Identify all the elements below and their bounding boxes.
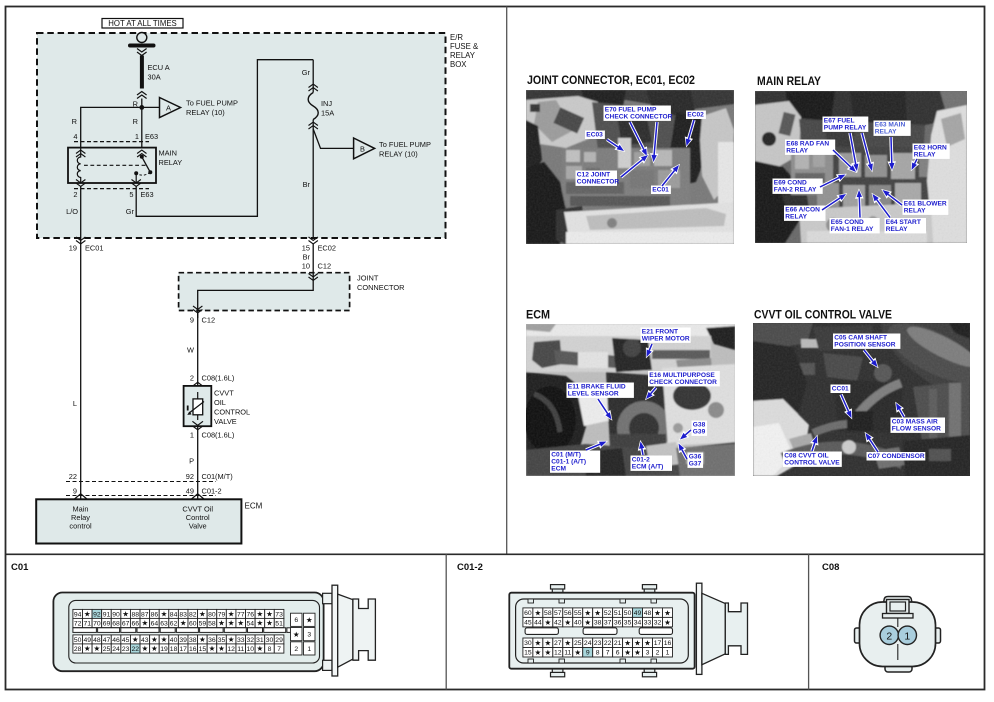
svg-text:★: ★ (141, 644, 148, 653)
svg-text:1: 1 (307, 646, 311, 653)
svg-text:L: L (73, 399, 77, 408)
svg-text:1: 1 (666, 650, 670, 657)
svg-text:2: 2 (190, 374, 194, 383)
svg-text:64: 64 (151, 620, 159, 627)
svg-text:★: ★ (594, 608, 601, 617)
svg-text:A: A (166, 104, 171, 113)
svg-text:73: 73 (275, 611, 283, 618)
svg-text:21: 21 (614, 640, 622, 647)
svg-text:★: ★ (624, 638, 631, 647)
svg-text:79: 79 (218, 611, 226, 618)
svg-text:C08: C08 (822, 562, 839, 573)
svg-text:8: 8 (268, 646, 272, 653)
svg-text:C07 CONDENSOR: C07 CONDENSOR (868, 453, 925, 460)
svg-text:55: 55 (574, 610, 582, 617)
svg-text:RELAY (10): RELAY (10) (379, 150, 418, 159)
svg-text:HOT AT ALL TIMES: HOT AT ALL TIMES (108, 19, 176, 28)
svg-text:JOINT: JOINT (357, 274, 379, 283)
svg-text:19: 19 (69, 244, 77, 253)
svg-text:★: ★ (141, 619, 148, 628)
svg-text:★: ★ (306, 616, 313, 625)
svg-text:51: 51 (614, 610, 622, 617)
svg-text:★: ★ (544, 618, 551, 627)
svg-text:22: 22 (604, 640, 612, 647)
svg-text:45: 45 (524, 620, 532, 627)
svg-text:★: ★ (84, 644, 91, 653)
svg-text:43: 43 (141, 637, 149, 644)
svg-text:33: 33 (237, 637, 245, 644)
svg-text:E63: E63 (145, 132, 158, 141)
svg-text:C08(1.6L): C08(1.6L) (202, 374, 235, 383)
svg-text:★: ★ (574, 648, 581, 657)
svg-text:RELAY: RELAY (785, 213, 807, 220)
svg-text:29: 29 (275, 637, 283, 644)
svg-text:★: ★ (664, 608, 671, 617)
svg-text:★: ★ (228, 610, 235, 619)
svg-text:62: 62 (170, 620, 178, 627)
svg-text:EC02: EC02 (687, 112, 704, 119)
svg-text:46: 46 (112, 637, 120, 644)
svg-text:38: 38 (594, 620, 602, 627)
svg-text:ECU A: ECU A (148, 63, 170, 72)
svg-text:59: 59 (199, 620, 207, 627)
svg-text:6: 6 (294, 617, 298, 624)
svg-text:C01: C01 (11, 562, 29, 573)
svg-text:18: 18 (170, 646, 178, 653)
svg-text:CC01: CC01 (832, 386, 849, 393)
svg-text:42: 42 (554, 620, 562, 627)
svg-text:25: 25 (574, 640, 582, 647)
svg-text:★: ★ (218, 619, 225, 628)
svg-text:ECM: ECM (551, 465, 566, 472)
svg-text:★: ★ (634, 638, 641, 647)
svg-text:★: ★ (654, 608, 661, 617)
svg-text:7: 7 (606, 650, 610, 657)
svg-text:90: 90 (112, 611, 120, 618)
svg-text:9: 9 (73, 487, 77, 496)
svg-text:38: 38 (189, 637, 197, 644)
svg-text:E63: E63 (141, 190, 154, 199)
svg-text:Br: Br (303, 180, 311, 189)
svg-text:ECM: ECM (526, 308, 550, 322)
svg-text:★: ★ (624, 648, 631, 657)
svg-text:3: 3 (307, 632, 311, 639)
svg-text:22: 22 (69, 472, 77, 481)
svg-text:49: 49 (186, 487, 194, 496)
svg-text:★: ★ (199, 635, 206, 644)
svg-text:★: ★ (122, 610, 129, 619)
svg-text:7: 7 (277, 646, 281, 653)
svg-text:4: 4 (73, 132, 77, 141)
svg-text:80: 80 (208, 611, 216, 618)
svg-text:36: 36 (208, 637, 216, 644)
svg-text:FLOW SENSOR: FLOW SENSOR (892, 425, 941, 432)
svg-text:28: 28 (74, 646, 82, 653)
svg-text:57: 57 (554, 610, 562, 617)
svg-text:40: 40 (574, 620, 582, 627)
svg-text:58: 58 (544, 610, 552, 617)
svg-text:★: ★ (132, 635, 139, 644)
svg-text:84: 84 (170, 611, 178, 618)
svg-text:52: 52 (604, 610, 612, 617)
svg-text:16: 16 (664, 640, 672, 647)
svg-text:11: 11 (564, 650, 571, 657)
svg-text:ECM (A/T): ECM (A/T) (632, 463, 664, 470)
svg-text:56: 56 (564, 610, 572, 617)
svg-text:JOINT CONNECTOR, EC01, EC02: JOINT CONNECTOR, EC01, EC02 (527, 73, 695, 87)
svg-text:70: 70 (93, 620, 101, 627)
svg-text:RELAY: RELAY (875, 128, 897, 135)
svg-text:17: 17 (654, 640, 662, 647)
svg-text:1: 1 (135, 132, 139, 141)
svg-text:★: ★ (534, 608, 541, 617)
svg-text:INJ: INJ (321, 99, 332, 108)
svg-text:15: 15 (524, 650, 532, 657)
svg-text:30: 30 (266, 637, 274, 644)
svg-text:2: 2 (73, 190, 77, 199)
svg-text:EC01: EC01 (652, 187, 669, 194)
svg-text:49: 49 (84, 637, 92, 644)
svg-text:Br: Br (303, 253, 311, 262)
svg-text:MAIN RELAY: MAIN RELAY (757, 74, 821, 88)
svg-text:control: control (69, 522, 92, 531)
svg-text:27: 27 (554, 640, 562, 647)
svg-text:34: 34 (634, 620, 642, 627)
svg-text:★: ★ (257, 619, 264, 628)
svg-text:77: 77 (237, 611, 245, 618)
svg-text:★: ★ (564, 638, 571, 647)
svg-text:67: 67 (122, 620, 130, 627)
svg-text:EC02: EC02 (318, 244, 337, 253)
svg-text:9: 9 (190, 316, 194, 325)
svg-text:12: 12 (554, 650, 562, 657)
svg-text:35: 35 (218, 637, 226, 644)
svg-text:G37: G37 (689, 460, 702, 467)
svg-text:48: 48 (93, 637, 101, 644)
svg-text:★: ★ (544, 648, 551, 657)
svg-text:19: 19 (160, 646, 168, 653)
svg-text:49: 49 (634, 610, 642, 617)
svg-text:2: 2 (656, 650, 660, 657)
svg-text:★: ★ (564, 618, 571, 627)
svg-text:Gr: Gr (126, 207, 135, 216)
svg-text:R: R (72, 117, 77, 126)
svg-text:C12: C12 (202, 316, 216, 325)
svg-text:★: ★ (584, 608, 591, 617)
svg-text:RELAY: RELAY (786, 147, 808, 154)
svg-text:EC03: EC03 (586, 132, 603, 139)
svg-text:CONTROL VALVE: CONTROL VALVE (784, 459, 840, 466)
svg-text:5: 5 (129, 190, 133, 199)
svg-text:★: ★ (151, 644, 158, 653)
svg-text:★: ★ (634, 648, 641, 657)
svg-text:★: ★ (534, 648, 541, 657)
svg-text:★: ★ (94, 644, 101, 653)
svg-text:23: 23 (594, 640, 602, 647)
svg-text:C12: C12 (318, 262, 332, 271)
svg-text:60: 60 (189, 620, 197, 627)
svg-text:1: 1 (190, 431, 194, 440)
svg-text:★: ★ (161, 635, 168, 644)
svg-text:48: 48 (644, 610, 652, 617)
svg-text:To FUEL PUMP: To FUEL PUMP (379, 140, 431, 149)
svg-text:★: ★ (228, 635, 235, 644)
svg-text:E/R: E/R (450, 33, 463, 42)
svg-text:23: 23 (122, 646, 130, 653)
svg-text:B: B (360, 145, 365, 154)
svg-text:RELAY: RELAY (450, 51, 476, 60)
svg-text:25: 25 (103, 646, 111, 653)
svg-text:3: 3 (646, 650, 650, 657)
svg-text:CONNECTOR: CONNECTOR (577, 178, 620, 185)
svg-text:76: 76 (247, 611, 255, 618)
svg-text:36: 36 (614, 620, 622, 627)
svg-text:★: ★ (218, 644, 225, 653)
svg-text:★: ★ (180, 619, 187, 628)
svg-text:40: 40 (170, 637, 178, 644)
svg-text:CVVT OIL CONTROL VALVE: CVVT OIL CONTROL VALVE (754, 308, 892, 322)
svg-text:83: 83 (179, 611, 187, 618)
svg-text:92: 92 (186, 472, 194, 481)
svg-text:★: ★ (257, 610, 264, 619)
svg-text:71: 71 (84, 620, 92, 627)
svg-text:★: ★ (664, 618, 671, 627)
svg-text:30A: 30A (148, 73, 161, 82)
svg-text:★: ★ (644, 638, 651, 647)
svg-text:30: 30 (524, 640, 532, 647)
svg-text:72: 72 (74, 620, 82, 627)
svg-text:51: 51 (275, 620, 283, 627)
svg-text:10: 10 (247, 646, 255, 653)
svg-text:★: ★ (228, 619, 235, 628)
svg-text:R: R (133, 117, 138, 126)
svg-text:86: 86 (151, 611, 159, 618)
svg-text:★: ★ (266, 619, 273, 628)
svg-text:★: ★ (293, 630, 300, 639)
svg-text:★: ★ (534, 638, 541, 647)
svg-text:35: 35 (624, 620, 632, 627)
svg-text:68: 68 (112, 620, 120, 627)
svg-text:11: 11 (237, 646, 244, 653)
svg-text:★: ★ (209, 644, 216, 653)
svg-text:★: ★ (151, 635, 158, 644)
svg-text:31: 31 (256, 637, 264, 644)
svg-text:EC01: EC01 (85, 244, 104, 253)
svg-text:C01(M/T): C01(M/T) (202, 472, 233, 481)
svg-text:RELAY: RELAY (886, 226, 908, 233)
svg-text:Gr: Gr (302, 68, 311, 77)
svg-text:★: ★ (199, 610, 206, 619)
svg-text:★: ★ (266, 610, 273, 619)
svg-text:60: 60 (524, 610, 532, 617)
svg-text:88: 88 (131, 611, 139, 618)
svg-text:82: 82 (189, 611, 197, 618)
svg-text:91: 91 (103, 611, 111, 618)
svg-text:6: 6 (616, 650, 620, 657)
svg-text:★: ★ (237, 619, 244, 628)
svg-text:FAN-2 RELAY: FAN-2 RELAY (774, 186, 817, 193)
svg-text:24: 24 (584, 640, 592, 647)
svg-text:VALVE: VALVE (214, 417, 237, 426)
svg-text:32: 32 (247, 637, 255, 644)
svg-text:54: 54 (247, 620, 255, 627)
svg-text:58: 58 (208, 620, 216, 627)
svg-text:16: 16 (189, 646, 197, 653)
svg-text:2: 2 (294, 646, 298, 653)
svg-text:RELAY: RELAY (904, 207, 926, 214)
svg-text:★: ★ (544, 638, 551, 647)
svg-text:66: 66 (131, 620, 139, 627)
svg-text:C08(1.6L): C08(1.6L) (202, 431, 235, 440)
svg-text:WIPER MOTOR: WIPER MOTOR (642, 335, 690, 342)
svg-text:33: 33 (644, 620, 652, 627)
svg-text:37: 37 (604, 620, 612, 627)
svg-text:W: W (187, 346, 194, 355)
svg-text:ECM: ECM (245, 502, 263, 511)
svg-text:CHECK CONNECTOR: CHECK CONNECTOR (649, 379, 717, 386)
svg-text:FAN-1 RELAY: FAN-1 RELAY (831, 226, 874, 233)
svg-text:CVVT: CVVT (214, 389, 234, 398)
svg-text:C01-2: C01-2 (457, 562, 483, 573)
svg-text:CONTROL: CONTROL (214, 408, 250, 417)
svg-text:45: 45 (122, 637, 130, 644)
svg-text:15: 15 (302, 244, 310, 253)
svg-text:RELAY: RELAY (914, 151, 936, 158)
svg-text:50: 50 (74, 637, 82, 644)
svg-text:22: 22 (131, 646, 139, 653)
svg-text:RELAY (10): RELAY (10) (186, 108, 225, 117)
svg-text:MAIN: MAIN (159, 149, 177, 158)
svg-text:Valve: Valve (189, 522, 207, 531)
svg-text:50: 50 (624, 610, 632, 617)
svg-text:PUMP RELAY: PUMP RELAY (824, 124, 867, 131)
svg-text:32: 32 (654, 620, 662, 627)
svg-text:15A: 15A (321, 109, 334, 118)
svg-text:17: 17 (179, 646, 187, 653)
svg-text:24: 24 (112, 646, 120, 653)
svg-text:44: 44 (534, 620, 542, 627)
svg-text:94: 94 (74, 611, 82, 618)
svg-text:LEVEL SENSOR: LEVEL SENSOR (568, 390, 619, 397)
svg-text:12: 12 (227, 646, 235, 653)
svg-text:★: ★ (584, 618, 591, 627)
svg-text:39: 39 (179, 637, 187, 644)
svg-text:92: 92 (93, 611, 101, 618)
svg-text:1: 1 (904, 630, 910, 642)
svg-text:2: 2 (886, 630, 892, 642)
svg-text:87: 87 (141, 611, 149, 618)
svg-text:CHECK CONNECTOR: CHECK CONNECTOR (605, 113, 673, 120)
svg-text:L/O: L/O (66, 207, 78, 216)
svg-text:63: 63 (160, 620, 168, 627)
svg-text:★: ★ (84, 610, 91, 619)
svg-text:G39: G39 (693, 428, 706, 435)
svg-text:FUSE &: FUSE & (450, 42, 479, 51)
svg-text:47: 47 (103, 637, 111, 644)
svg-text:RELAY: RELAY (159, 158, 183, 167)
svg-text:9: 9 (586, 650, 590, 657)
svg-text:POSITION SENSOR: POSITION SENSOR (834, 341, 895, 348)
svg-text:8: 8 (596, 650, 600, 657)
svg-text:★: ★ (257, 644, 264, 653)
svg-text:69: 69 (103, 620, 111, 627)
svg-text:OIL: OIL (214, 398, 226, 407)
svg-text:10: 10 (302, 262, 310, 271)
svg-text:CONNECTOR: CONNECTOR (357, 283, 405, 292)
svg-text:15: 15 (199, 646, 207, 653)
svg-text:★: ★ (161, 610, 168, 619)
svg-text:To FUEL PUMP: To FUEL PUMP (186, 99, 238, 108)
svg-text:BOX: BOX (450, 60, 467, 69)
svg-text:C01-2: C01-2 (202, 487, 222, 496)
svg-text:P: P (189, 457, 194, 466)
